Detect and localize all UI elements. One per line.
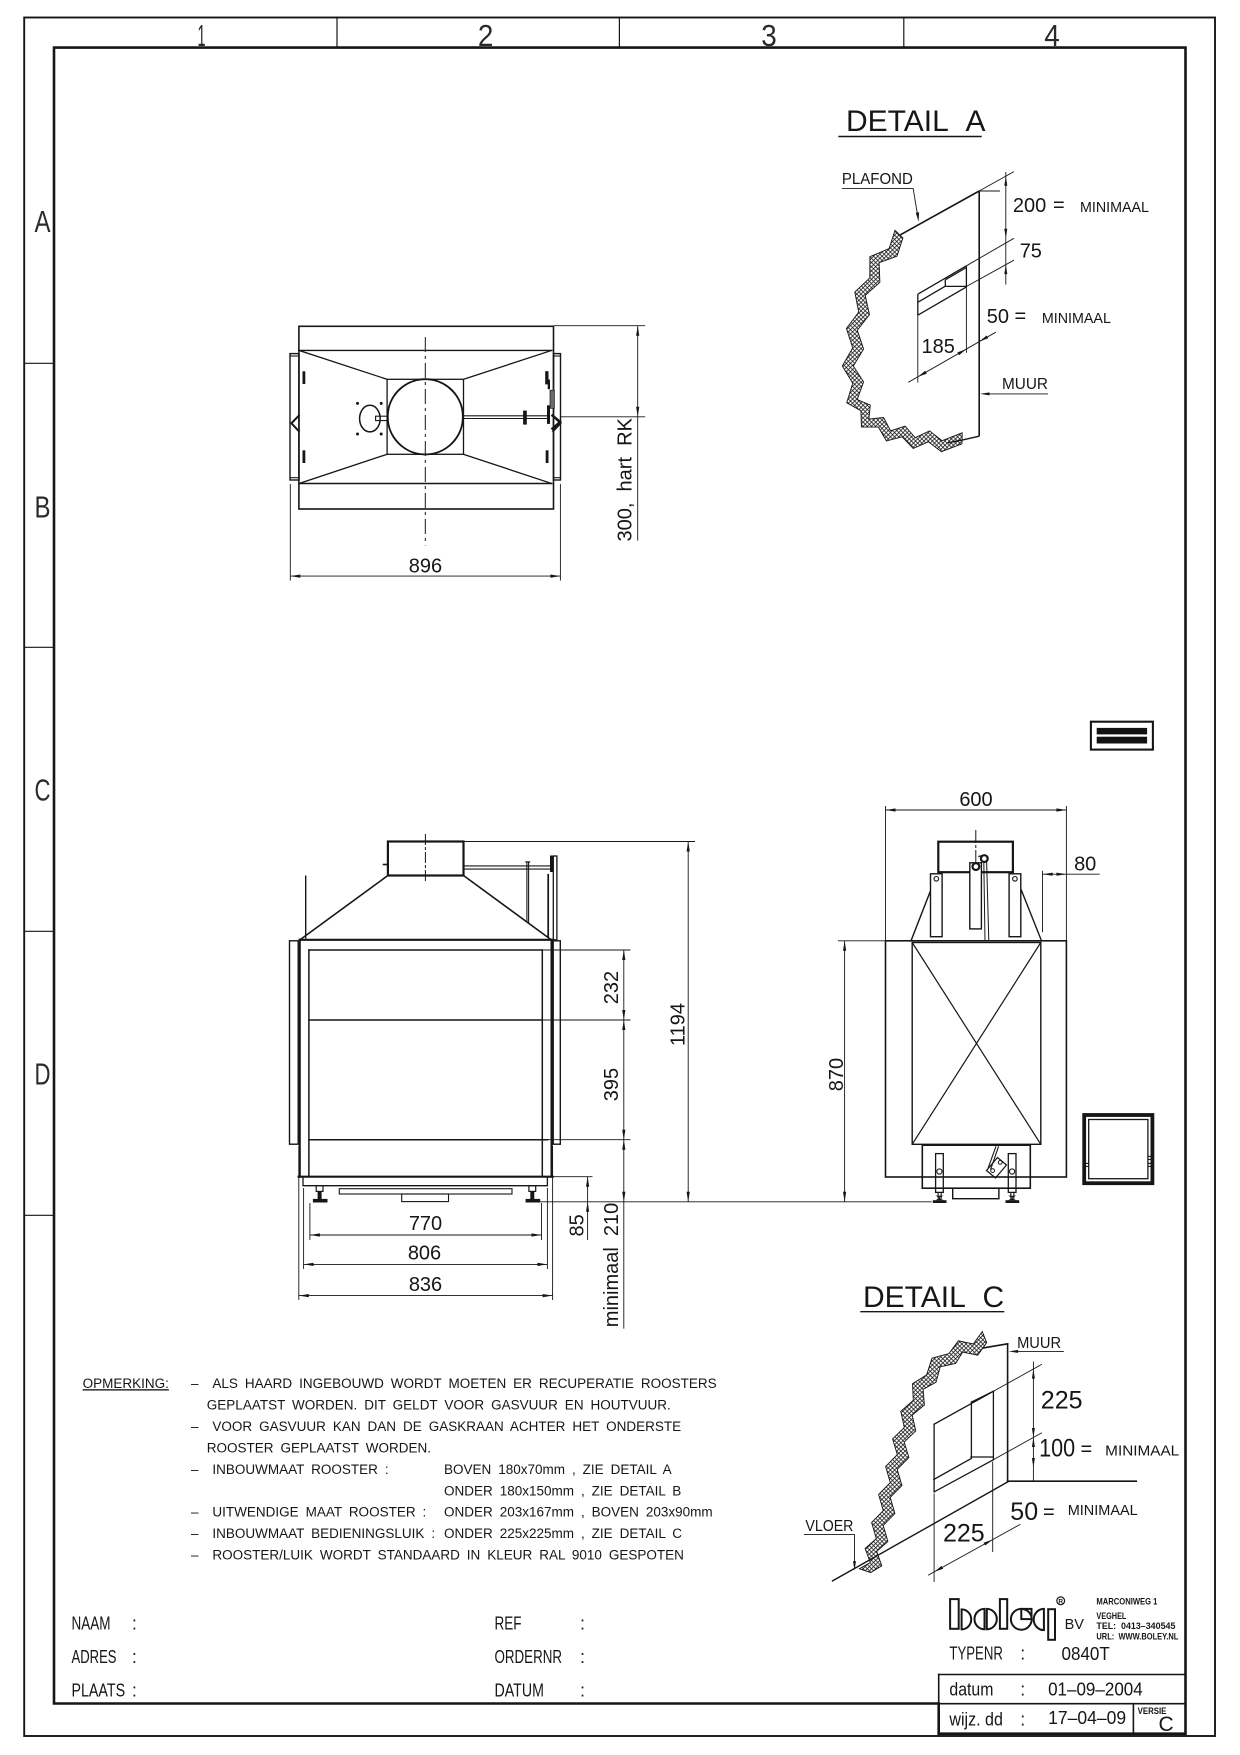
svg-text:C: C — [35, 772, 51, 807]
svg-text:DETAIL A: DETAIL A — [846, 105, 985, 138]
svg-text:3: 3 — [761, 18, 777, 53]
svg-text:PLAFOND: PLAFOND — [842, 171, 913, 188]
svg-text:1194: 1194 — [668, 1003, 690, 1046]
svg-text:– ROOSTER/LUIK WORDT STANDAAR: – ROOSTER/LUIK WORDT STANDAARD IN KLEUR … — [191, 1548, 684, 1563]
svg-text::: : — [132, 1680, 137, 1700]
svg-text:ORDERNR: ORDERNR — [495, 1647, 563, 1667]
svg-text:datum: datum — [949, 1680, 993, 1700]
svg-text:185: 185 — [922, 336, 955, 358]
svg-text:OPMERKING:: OPMERKING: — [83, 1376, 169, 1391]
svg-text:225: 225 — [1041, 1387, 1083, 1415]
svg-text:R: R — [1058, 1599, 1063, 1606]
svg-text:MINIMAAL: MINIMAAL — [1068, 1502, 1138, 1519]
svg-text:300, hart RK: 300, hart RK — [615, 417, 637, 541]
svg-text:1: 1 — [198, 18, 206, 53]
svg-text:C: C — [1159, 1713, 1174, 1736]
svg-text:MARCONIWEG 1: MARCONIWEG 1 — [1096, 1597, 1158, 1608]
svg-text:836: 836 — [409, 1274, 442, 1296]
svg-text:BOVEN 180x70mm , ZIE DETAIL A: BOVEN 180x70mm , ZIE DETAIL A — [444, 1462, 672, 1477]
svg-text:200: 200 — [1013, 195, 1046, 217]
svg-text:A: A — [35, 204, 51, 239]
svg-text:17–04–09: 17–04–09 — [1048, 1708, 1126, 1728]
svg-text:wijz. dd: wijz. dd — [949, 1709, 1003, 1729]
svg-text:806: 806 — [408, 1243, 441, 1265]
svg-text:ONDER 225x225mm , ZIE DETAIL C: ONDER 225x225mm , ZIE DETAIL C — [444, 1526, 682, 1541]
svg-text:4: 4 — [1044, 18, 1060, 53]
svg-text:600: 600 — [959, 789, 992, 811]
svg-text:– INBOUWMAAT BEDIENINGSLUIK :: – INBOUWMAAT BEDIENINGSLUIK : — [191, 1526, 435, 1541]
svg-text:896: 896 — [409, 556, 442, 578]
svg-text:URL: WWW.BOLEY.NL: URL: WWW.BOLEY.NL — [1096, 1632, 1178, 1643]
svg-text:870: 870 — [826, 1058, 848, 1091]
svg-text:395: 395 — [601, 1068, 623, 1101]
svg-text:ROOSTER GEPLAATST WORDEN.: ROOSTER GEPLAATST WORDEN. — [207, 1441, 431, 1456]
svg-text:80: 80 — [1074, 854, 1096, 876]
svg-text:DETAIL C: DETAIL C — [863, 1281, 1004, 1314]
svg-text:0840T: 0840T — [1062, 1644, 1110, 1664]
svg-text:225: 225 — [943, 1520, 985, 1548]
svg-text::: : — [1020, 1644, 1025, 1664]
svg-text:minimaal 210: minimaal 210 — [601, 1203, 623, 1328]
svg-text::: : — [132, 1647, 137, 1667]
svg-text:D: D — [35, 1056, 51, 1091]
svg-text:2: 2 — [478, 18, 494, 53]
svg-text:– ALS HAARD INGEBOUWD WORDT M: – ALS HAARD INGEBOUWD WORDT MOETEN ER RE… — [191, 1376, 717, 1391]
svg-text:50: 50 — [1010, 1498, 1038, 1526]
svg-text:770: 770 — [409, 1213, 442, 1235]
svg-text:B: B — [35, 490, 51, 525]
svg-text:ONDER 203x167mm , BOVEN 203x90: ONDER 203x167mm , BOVEN 203x90mm — [444, 1505, 713, 1520]
svg-text:– UITWENDIGE MAAT ROOSTER :: – UITWENDIGE MAAT ROOSTER : — [191, 1505, 426, 1520]
svg-text:ADRES: ADRES — [72, 1647, 117, 1667]
svg-text:GEPLAATST WORDEN. DIT GELDT VO: GEPLAATST WORDEN. DIT GELDT VOOR GASVUUR… — [207, 1398, 671, 1413]
svg-text::: : — [580, 1647, 585, 1667]
svg-text::: : — [132, 1614, 137, 1634]
svg-text::: : — [580, 1680, 585, 1700]
svg-text:MINIMAAL: MINIMAAL — [1042, 310, 1111, 327]
svg-text:232: 232 — [601, 971, 623, 1004]
svg-text:– VOOR GASVUUR KAN DAN DE GAS: – VOOR GASVUUR KAN DAN DE GASKRAAN ACHTE… — [191, 1419, 681, 1434]
svg-text:PLAATS: PLAATS — [72, 1680, 126, 1700]
svg-text::: : — [1020, 1709, 1025, 1729]
svg-text::: : — [1020, 1680, 1025, 1700]
svg-text:– INBOUWMAAT ROOSTER :: – INBOUWMAAT ROOSTER : — [191, 1462, 389, 1477]
svg-text:MINIMAAL: MINIMAAL — [1105, 1443, 1179, 1460]
svg-text:85: 85 — [567, 1214, 589, 1236]
svg-text:BV: BV — [1065, 1617, 1085, 1633]
svg-text:100: 100 — [1039, 1434, 1075, 1462]
svg-text:01–09–2004: 01–09–2004 — [1048, 1680, 1143, 1700]
svg-text:MINIMAAL: MINIMAAL — [1080, 199, 1149, 216]
svg-text:DATUM: DATUM — [495, 1680, 544, 1700]
svg-text:MUUR: MUUR — [1002, 376, 1048, 393]
svg-text:50: 50 — [987, 306, 1009, 328]
svg-text:ONDER 180x150mm , ZIE DETAIL B: ONDER 180x150mm , ZIE DETAIL B — [444, 1483, 681, 1498]
svg-text::: : — [580, 1614, 585, 1634]
svg-text:75: 75 — [1020, 240, 1042, 262]
svg-text:TYPENR: TYPENR — [949, 1644, 1003, 1664]
svg-text:=: = — [1015, 306, 1027, 328]
svg-text:REF: REF — [495, 1614, 522, 1634]
svg-text:=: = — [1043, 1502, 1055, 1524]
svg-text:=: = — [1053, 194, 1065, 216]
svg-text:=: = — [1081, 1438, 1093, 1460]
svg-text:VLOER: VLOER — [805, 1518, 853, 1535]
svg-text:NAAM: NAAM — [72, 1614, 111, 1634]
svg-text:MUUR: MUUR — [1017, 1335, 1061, 1352]
